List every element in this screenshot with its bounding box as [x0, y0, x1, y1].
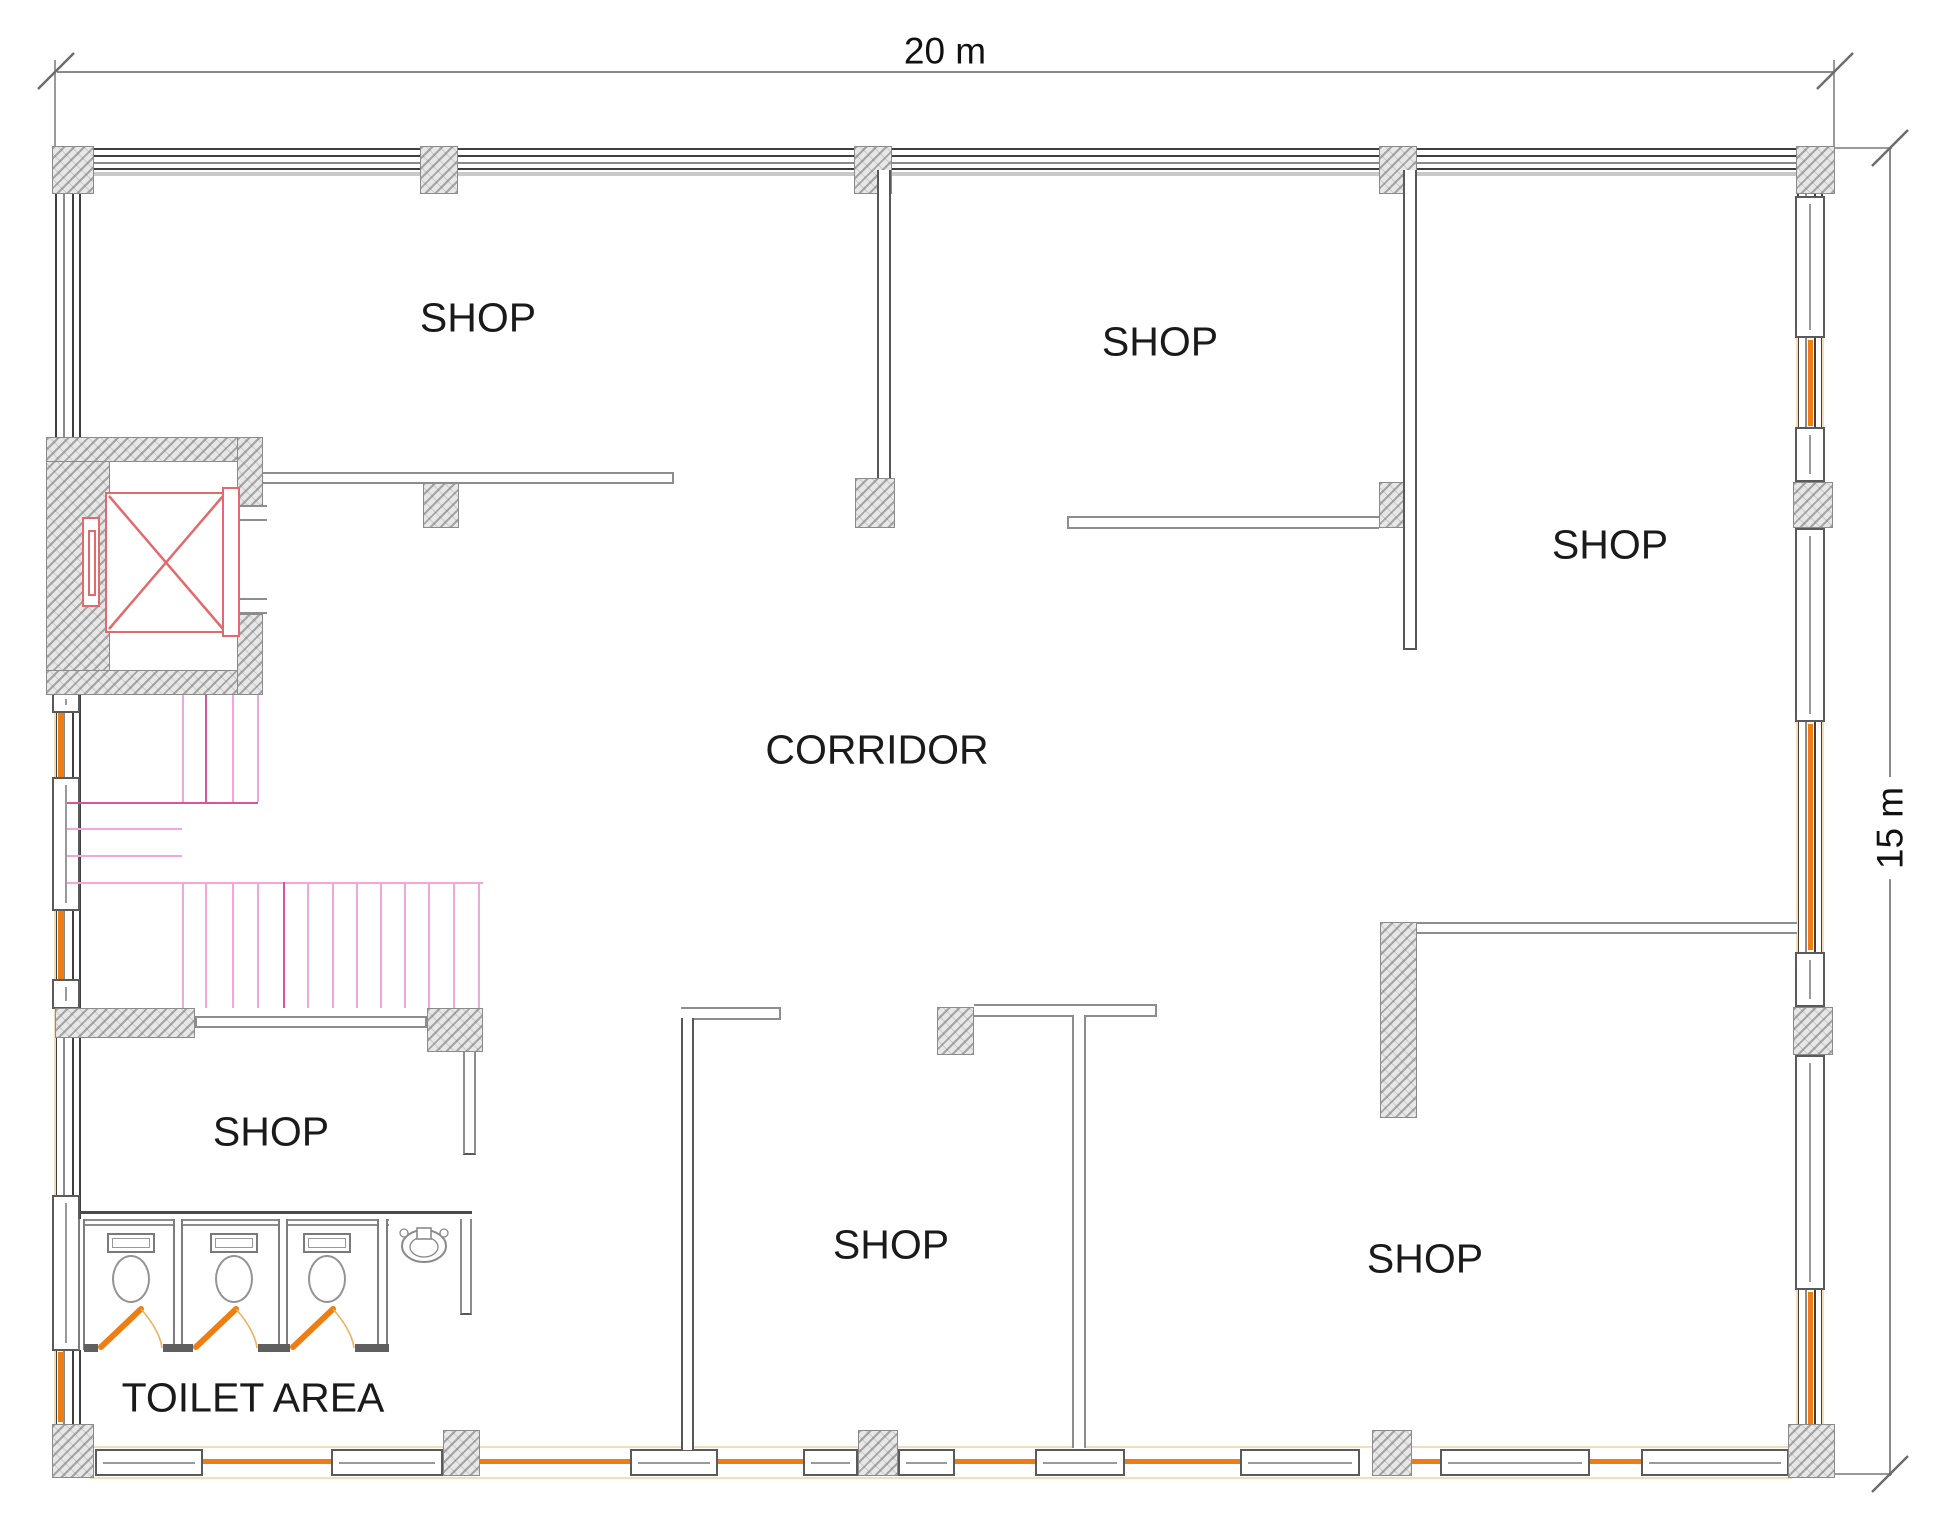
room-label-shop-bottom-middle: SHOP — [833, 1225, 949, 1266]
room-label-shop-left-middle: SHOP — [213, 1112, 329, 1153]
floor-plan: 20 m 15 m — [0, 0, 1960, 1533]
sink-icon — [400, 1228, 448, 1262]
room-label-shop-bottom-right: SHOP — [1367, 1239, 1483, 1280]
toilet-door-leaves — [101, 1309, 333, 1347]
room-label-shop-right: SHOP — [1552, 525, 1668, 566]
elevator-x-symbol — [109, 496, 223, 629]
room-label-shop-top-middle: SHOP — [1102, 322, 1218, 363]
room-label-shop-top-left: SHOP — [420, 298, 536, 339]
room-label-toilet-area: TOILET AREA — [122, 1378, 385, 1419]
dimension-ticks — [38, 53, 1908, 1492]
room-label-corridor: CORRIDOR — [765, 730, 988, 771]
toilet-door-swing-arcs — [141, 1309, 354, 1348]
